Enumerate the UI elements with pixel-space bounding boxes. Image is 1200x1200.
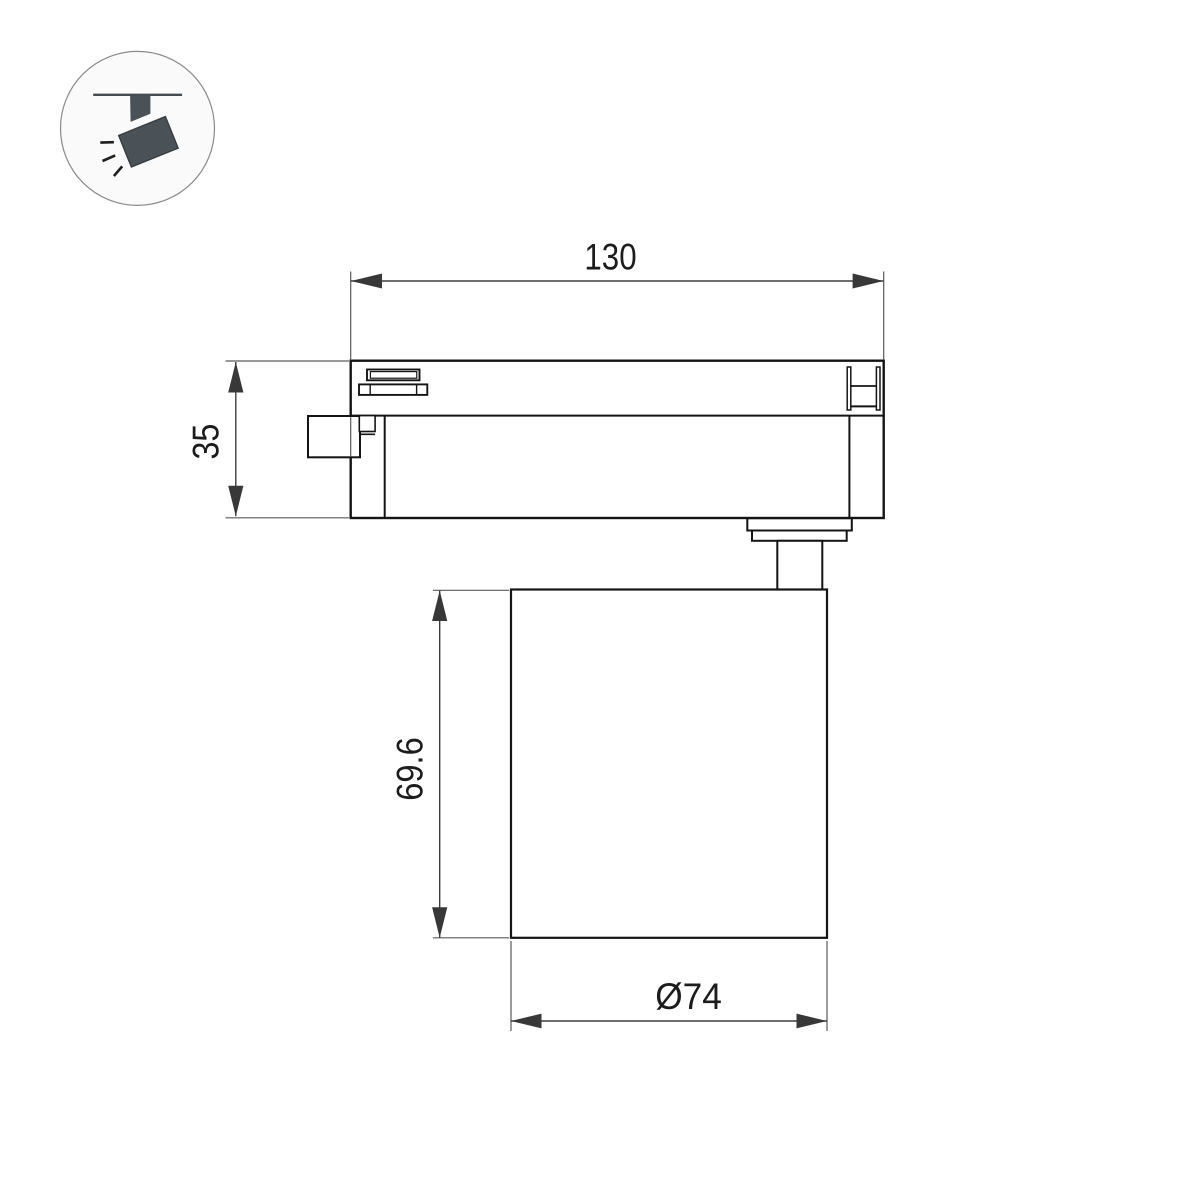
svg-text:130: 130 <box>584 237 636 278</box>
svg-text:35: 35 <box>185 424 227 460</box>
svg-text:69.6: 69.6 <box>389 737 431 800</box>
svg-text:Ø74: Ø74 <box>655 975 722 1017</box>
